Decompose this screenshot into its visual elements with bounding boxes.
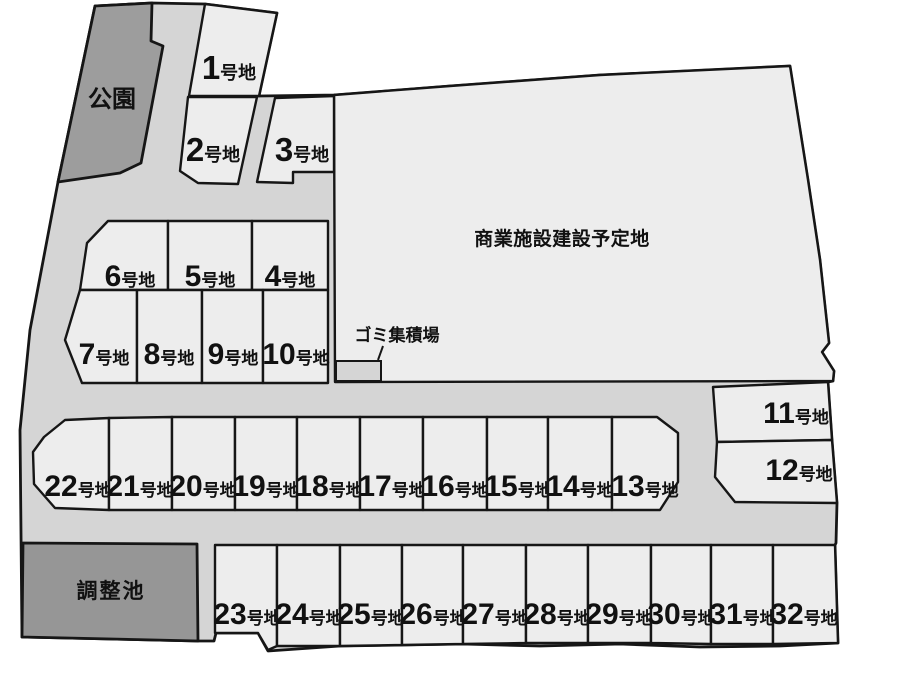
park-label: 公園: [88, 86, 136, 113]
retention-pond: 調整池: [22, 543, 198, 641]
lot-1: 1号地: [189, 4, 277, 96]
lot-12: 12号地: [715, 440, 837, 503]
lot-14: 14号地: [546, 417, 613, 510]
lot-16: 16号地: [421, 417, 488, 510]
lot-15: 15号地: [484, 417, 551, 510]
lot-24: 24号地: [275, 545, 342, 646]
lot-7-region: [65, 290, 137, 383]
lot-27: 27号地: [461, 545, 528, 644]
lot-21: 21号地: [106, 417, 173, 510]
lot-7: 7号地: [65, 290, 137, 383]
lot-25: 25号地: [337, 545, 404, 646]
lot-17: 17号地: [358, 417, 425, 510]
lot-29: 29号地: [585, 545, 652, 643]
site-plan: 公園 商業施設建設予定地 ゴミ集積場 調整池 1号地 2号地 3号地 6号地 5…: [0, 0, 900, 673]
lot-30: 30号地: [647, 545, 714, 644]
commercial-label: 商業施設建設予定地: [474, 227, 650, 250]
lot-32: 32号地: [770, 545, 838, 644]
lot-8: 8号地: [137, 290, 202, 383]
lot-map-page: 公園 商業施設建設予定地 ゴミ集積場 調整池 1号地 2号地 3号地 6号地 5…: [0, 0, 900, 673]
retention-pond-label: 調整池: [77, 579, 146, 603]
lot-31: 31号地: [709, 545, 776, 644]
lot-13: 13号地: [611, 417, 678, 510]
garbage-station-marker: [336, 361, 381, 381]
lot-10: 10号地: [262, 290, 329, 383]
garbage-station-label: ゴミ集積場: [355, 325, 440, 345]
lot-19: 19号地: [232, 417, 299, 510]
lot-20: 20号地: [169, 417, 236, 510]
lot-4: 4号地: [252, 221, 328, 293]
lot-11: 11号地: [713, 382, 832, 442]
lot-9: 9号地: [202, 290, 263, 383]
lot-28: 28号地: [523, 545, 590, 643]
lot-5: 5号地: [168, 221, 252, 293]
lot-18: 18号地: [295, 417, 362, 510]
lot-26: 26号地: [399, 545, 466, 645]
